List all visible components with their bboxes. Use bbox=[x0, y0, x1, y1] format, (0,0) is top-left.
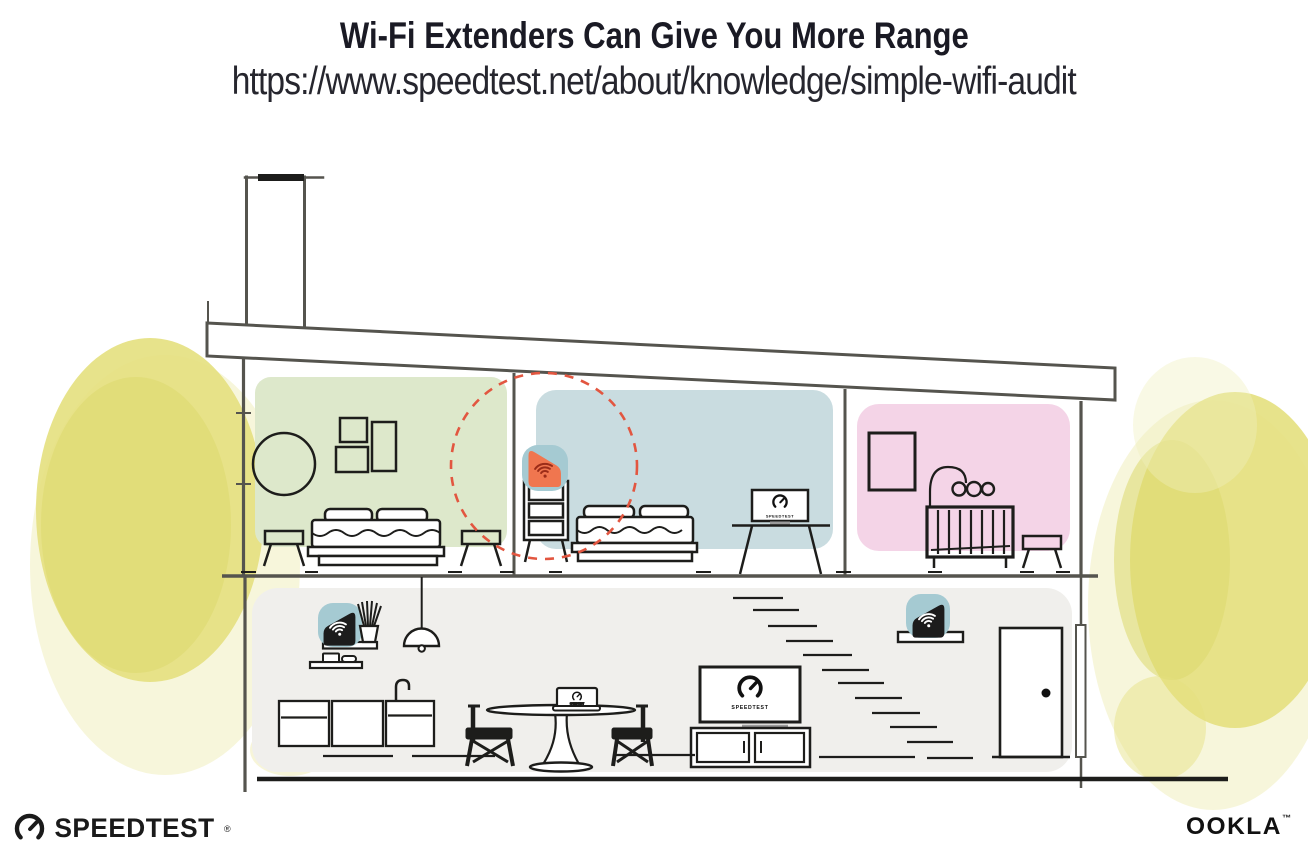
wifi-extender-downstairs bbox=[906, 594, 950, 638]
tv-brand-label: SPEEDTEST bbox=[731, 705, 768, 711]
downspout bbox=[1076, 625, 1086, 757]
speedtest-logo: SPEEDTEST® bbox=[14, 813, 231, 844]
bed bbox=[572, 506, 697, 561]
bed bbox=[308, 509, 444, 565]
registered-mark: ® bbox=[224, 824, 231, 834]
header: Wi-Fi Extenders Can Give You More Range … bbox=[0, 14, 1308, 105]
ookla-logo: OOKLA™ bbox=[1186, 813, 1293, 841]
page-title: Wi-Fi Extenders Can Give You More Range bbox=[340, 14, 969, 58]
chimney bbox=[245, 174, 323, 328]
front-door bbox=[992, 628, 1070, 757]
speedtest-gauge-icon bbox=[14, 813, 45, 844]
wifi-router bbox=[318, 603, 362, 647]
laptop: SPEEDTEST bbox=[553, 688, 600, 711]
living-room-tv: SPEEDTEST bbox=[691, 667, 810, 767]
pink-nursery-background bbox=[857, 404, 1070, 551]
speedtest-wordmark: SPEEDTEST bbox=[54, 813, 214, 844]
house-illustration: SPEEDTEST bbox=[0, 0, 1308, 861]
tv-screen bbox=[700, 667, 800, 722]
media-console bbox=[691, 728, 810, 767]
ookla-wordmark: OOKLA bbox=[1186, 813, 1282, 840]
dresser bbox=[524, 481, 568, 562]
tv-brand-label: SPEEDTEST bbox=[766, 514, 794, 519]
source-url: https://www.speedtest.net/about/knowledg… bbox=[232, 59, 1076, 105]
foliage-right bbox=[1088, 357, 1308, 810]
trademark-mark: ™ bbox=[1282, 813, 1293, 823]
door-knob bbox=[1042, 689, 1051, 698]
wifi-extender-upstairs bbox=[522, 445, 568, 491]
stool bbox=[1023, 536, 1061, 568]
